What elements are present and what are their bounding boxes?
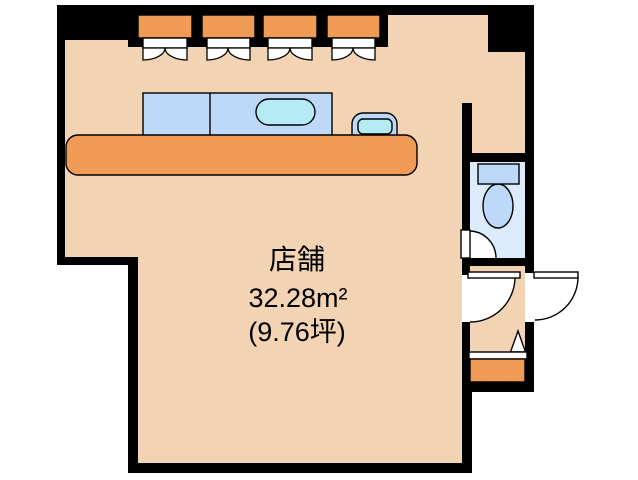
toilet-tank-icon <box>478 164 519 184</box>
toilet-bowl-icon <box>483 184 513 228</box>
window-frame <box>207 38 250 48</box>
wall-lower-right <box>462 392 472 473</box>
genkan-step-icon <box>470 359 525 382</box>
wall-toilet-bottom <box>462 258 534 266</box>
wall-top-a <box>57 5 130 40</box>
window-frame <box>143 38 187 48</box>
hand-basin-bowl-icon <box>358 119 392 134</box>
wall-toilet-top <box>462 153 534 162</box>
shutter-box-icon <box>327 15 380 38</box>
wall-step <box>57 257 137 265</box>
wall-bottom <box>128 463 472 473</box>
wall-corner-pillar <box>488 5 525 52</box>
kitchen-sink-icon <box>256 99 315 125</box>
room-door-leaf-icon <box>468 272 520 278</box>
shutter-box-icon <box>202 15 255 38</box>
entry-door-opening <box>525 273 534 322</box>
wall-lower-left <box>128 257 138 473</box>
room-name-label: 店舗 <box>269 244 325 275</box>
toilet-door-leaf-icon <box>461 230 470 258</box>
shutter-box-icon <box>263 15 317 38</box>
entry-door-leaf-icon <box>534 272 578 278</box>
area-sqm-label: 32.28m² <box>248 283 347 313</box>
floor-plan-page: 店舗 32.28m² (9.76坪) <box>0 0 638 480</box>
wall-left <box>57 5 65 265</box>
wall-top-c <box>388 5 488 15</box>
floor-plan-canvas: 店舗 32.28m² (9.76坪) <box>0 0 638 480</box>
wall-vestibule-bottom <box>462 382 534 392</box>
area-tsubo-label: (9.76坪) <box>248 317 346 347</box>
shutter-box-icon <box>138 15 192 38</box>
window-frame <box>268 38 312 48</box>
wall-right <box>525 5 534 392</box>
window-frame <box>332 38 375 48</box>
room-door-opening <box>462 275 470 322</box>
service-counter-icon <box>66 135 417 175</box>
genkan-threshold-icon <box>469 352 527 359</box>
